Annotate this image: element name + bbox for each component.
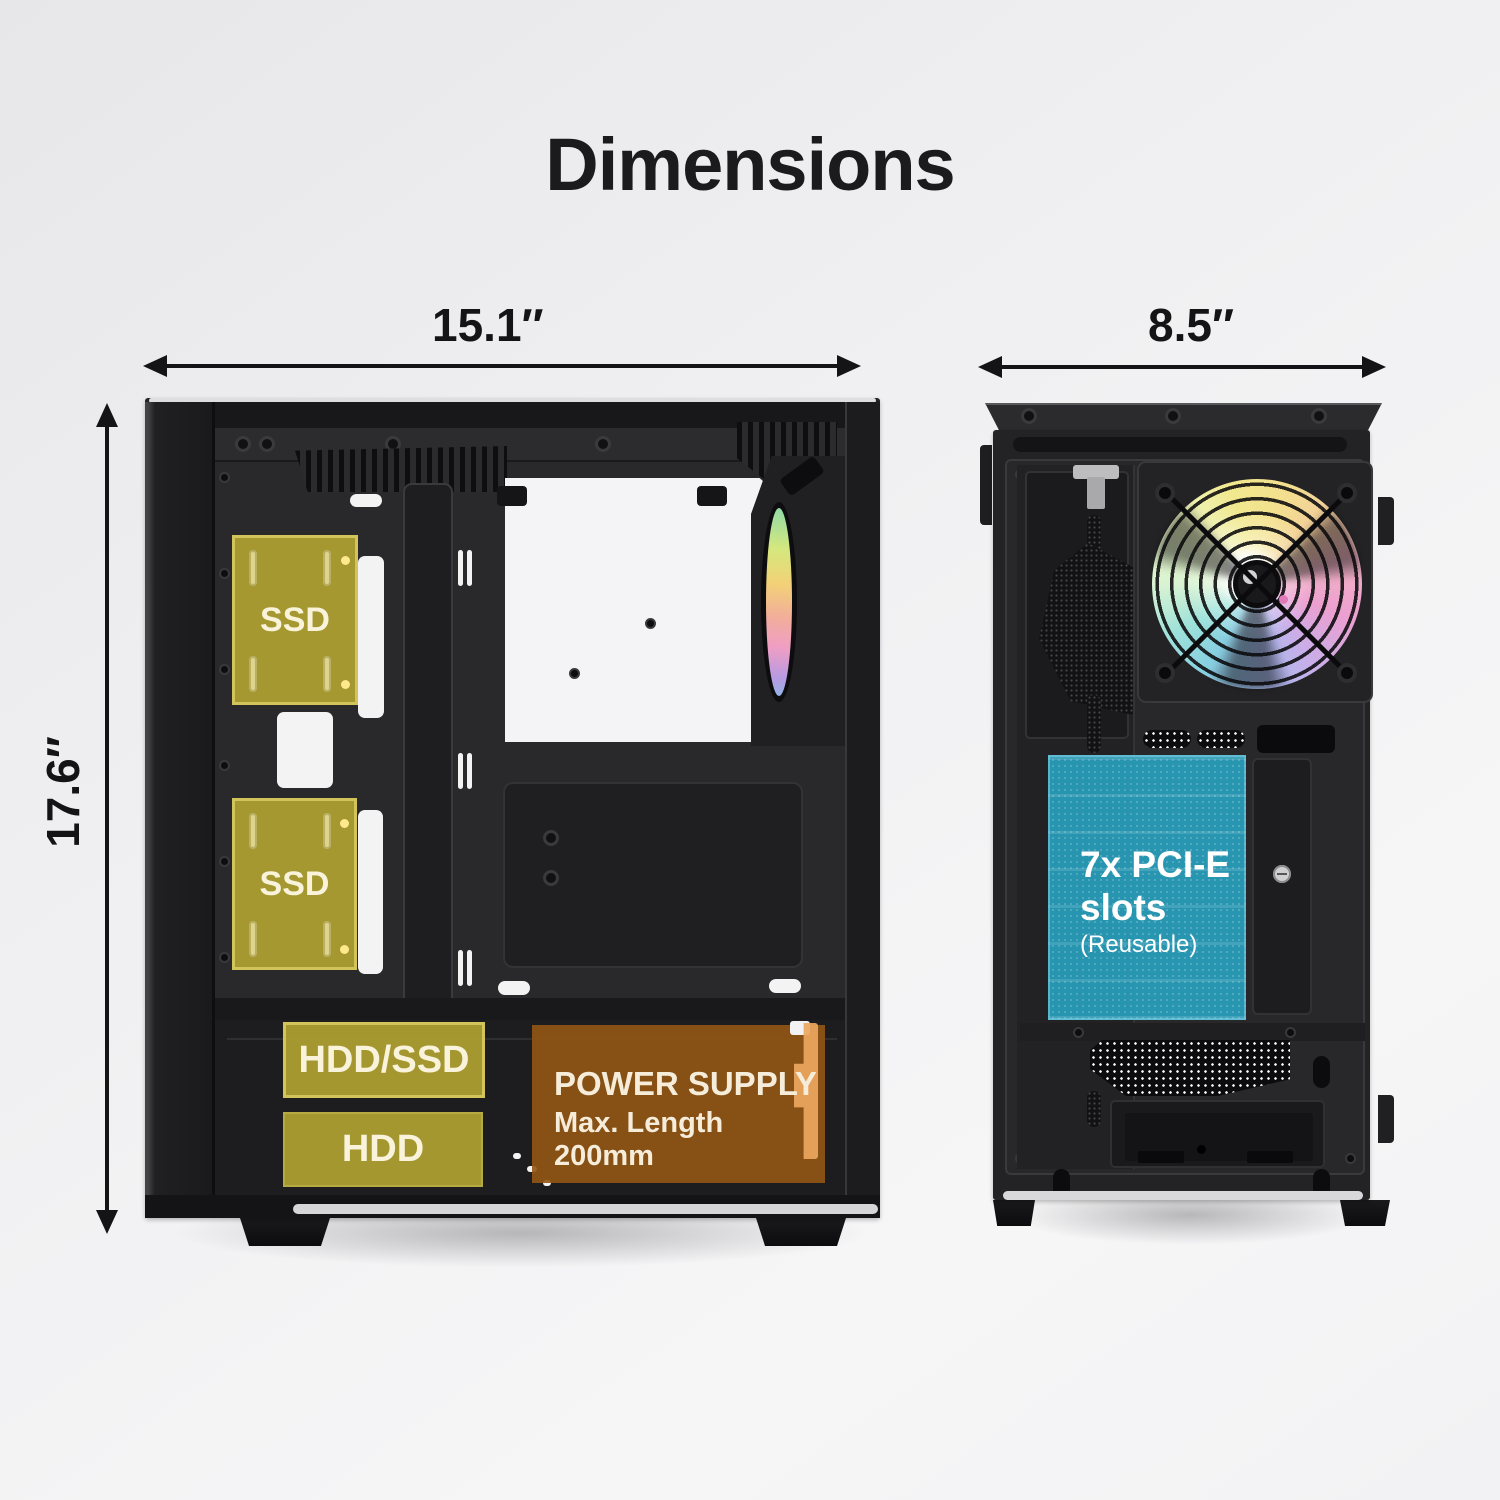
side-bottom-highlight bbox=[293, 1204, 878, 1214]
ssd-bay-bottom-label: SSD bbox=[260, 865, 330, 904]
side-width-arrowhead-left bbox=[143, 355, 167, 377]
rear-width-arrowhead-left bbox=[978, 356, 1002, 378]
front-panel-strip bbox=[145, 402, 215, 1215]
standoff-slot bbox=[350, 494, 382, 507]
screw bbox=[1165, 408, 1181, 424]
psu-bracket-hole bbox=[1197, 1145, 1206, 1154]
side-width-label: 15.1″ bbox=[432, 298, 544, 352]
ssd-mount-slot bbox=[249, 921, 257, 957]
rear-edge-frame bbox=[845, 402, 880, 1215]
pc-case-rear-view: 7x PCI-E slots (Reusable) bbox=[985, 403, 1382, 1200]
page-title: Dimensions bbox=[0, 122, 1500, 207]
ssd-screw-hole bbox=[341, 556, 350, 565]
screw bbox=[1073, 1027, 1084, 1038]
top-vent-fins bbox=[295, 446, 507, 492]
screw bbox=[569, 668, 580, 679]
rear-case-foot-right bbox=[1340, 1200, 1390, 1226]
ssd-bay-top-overlay: SSD bbox=[232, 535, 358, 705]
ssd-screw-hole bbox=[340, 819, 349, 828]
ssd-mount-slot bbox=[249, 656, 257, 692]
cable-channel-column bbox=[403, 483, 453, 1035]
oblong-cutout bbox=[1313, 1056, 1330, 1088]
drive-cage-slot bbox=[358, 810, 383, 974]
fan-corner-screw bbox=[1337, 483, 1357, 503]
screw bbox=[645, 618, 656, 629]
cable-clip bbox=[513, 1153, 521, 1159]
psu-title: POWER SUPPLY bbox=[554, 1065, 817, 1103]
side-width-arrow-line bbox=[152, 364, 852, 368]
ssd-bay-top-label: SSD bbox=[260, 601, 330, 640]
ssd-mount-slot bbox=[323, 656, 331, 692]
expansion-bracket-column bbox=[1252, 758, 1312, 1015]
cable-slot bbox=[458, 550, 463, 586]
rear-width-label: 8.5″ bbox=[1148, 298, 1234, 352]
screw bbox=[219, 664, 230, 675]
rear-mid-rail bbox=[1020, 1023, 1365, 1041]
hdd-ssd-bay-label: HDD/SSD bbox=[298, 1039, 469, 1082]
ssd-mount-slot bbox=[323, 550, 331, 586]
rear-fan-panel bbox=[1137, 461, 1373, 703]
fan-corner-screw bbox=[1337, 663, 1357, 683]
ssd-mount-slot bbox=[249, 550, 257, 586]
height-label: 17.6″ bbox=[36, 727, 90, 857]
thumbscrew-slot bbox=[1277, 873, 1287, 875]
ssd-bay-bottom-overlay: SSD bbox=[232, 798, 357, 970]
power-supply-overlay: POWER SUPPLY Max. Length 200mm bbox=[532, 1025, 825, 1183]
rear-cutout bbox=[1257, 725, 1335, 753]
side-rgb-fan bbox=[766, 508, 792, 696]
pcie-slots-overlay: 7x PCI-E slots (Reusable) bbox=[1048, 755, 1246, 1020]
hdd-ssd-bay-overlay: HDD/SSD bbox=[283, 1022, 485, 1098]
rear-top-vent-slot bbox=[1013, 437, 1347, 452]
grommet-tab bbox=[497, 486, 527, 506]
height-arrowhead-bottom bbox=[96, 1210, 118, 1234]
fan-corner-screw bbox=[1155, 483, 1175, 503]
screw bbox=[1021, 408, 1037, 424]
screw bbox=[259, 436, 275, 452]
fan-corner-screw bbox=[1155, 663, 1175, 683]
cable-slot bbox=[467, 550, 472, 586]
drive-cage-slot bbox=[358, 556, 384, 718]
pcie-line2: slots bbox=[1080, 887, 1244, 930]
cable-slot bbox=[467, 753, 472, 789]
screw bbox=[219, 472, 230, 483]
screw bbox=[219, 760, 230, 771]
ssd-mount-slot bbox=[323, 813, 331, 849]
ssd-screw-hole bbox=[340, 945, 349, 954]
psu-subtitle: Max. Length 200mm bbox=[554, 1107, 825, 1173]
pcie-line3: (Reusable) bbox=[1080, 929, 1244, 960]
ssd-mount-slot bbox=[323, 921, 331, 957]
cable-slot bbox=[458, 753, 463, 789]
screw bbox=[1285, 1027, 1296, 1038]
hdd-bay-label: HDD bbox=[342, 1128, 424, 1171]
support-bracket-stem bbox=[1087, 477, 1105, 509]
screw bbox=[543, 870, 559, 886]
ssd-screw-hole bbox=[341, 680, 350, 689]
screw bbox=[219, 568, 230, 579]
screw bbox=[595, 436, 611, 452]
cable-slot bbox=[467, 950, 472, 986]
cable-slot bbox=[458, 950, 463, 986]
side-width-arrowhead-right bbox=[837, 355, 861, 377]
rear-width-arrowhead-right bbox=[1362, 356, 1386, 378]
height-arrow-line bbox=[105, 412, 109, 1224]
screw bbox=[1345, 1153, 1356, 1164]
pc-case-side-view: SSD SSD HDD/SSD HDD POWER SUPPLY Max. Le… bbox=[145, 398, 880, 1218]
dimensions-infographic: { "title": "Dimensions", "side_view": { … bbox=[0, 0, 1500, 1500]
chamber-divider bbox=[215, 998, 845, 1020]
pcie-line1: 7x PCI-E bbox=[1080, 844, 1244, 887]
screw bbox=[219, 952, 230, 963]
ssd-mount-slot bbox=[249, 813, 257, 849]
side-case-foot-left bbox=[240, 1218, 330, 1246]
rear-width-arrow-line bbox=[987, 365, 1377, 369]
vent-strip bbox=[1087, 1091, 1101, 1127]
screw bbox=[1311, 408, 1327, 424]
screw bbox=[219, 856, 230, 867]
drive-cage-cutout bbox=[277, 712, 333, 788]
vent-strip bbox=[1087, 695, 1101, 753]
screw bbox=[235, 436, 251, 452]
rear-case-foot-left bbox=[993, 1200, 1035, 1226]
tray-slot bbox=[498, 981, 530, 995]
side-case-foot-right bbox=[756, 1218, 846, 1246]
hdd-bay-overlay: HDD bbox=[283, 1112, 483, 1187]
psu-bracket-notch bbox=[1247, 1151, 1293, 1163]
rear-vent-strip bbox=[1197, 730, 1245, 748]
grommet-tab bbox=[697, 486, 727, 506]
height-arrowhead-top bbox=[96, 403, 118, 427]
rear-bottom-highlight bbox=[1003, 1191, 1363, 1200]
screw bbox=[543, 830, 559, 846]
tray-slot bbox=[769, 979, 801, 993]
rear-vent-strip bbox=[1143, 730, 1191, 748]
psu-bracket-notch bbox=[1138, 1151, 1184, 1163]
